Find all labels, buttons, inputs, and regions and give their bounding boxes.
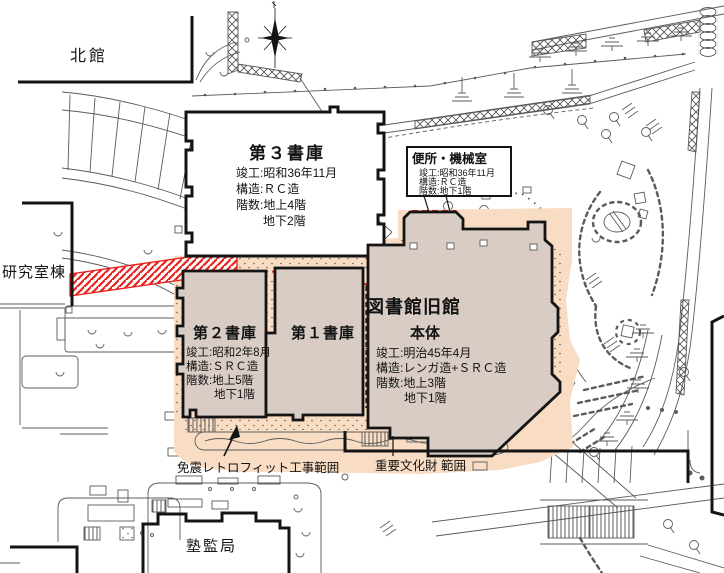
- label-research-building: 研究室棟: [2, 264, 66, 281]
- stack3-title: 第３書庫: [249, 143, 325, 163]
- toilet-machine-label-box: 便所・機械室 竣工:昭和36年11月 構造:ＲＣ造 階数:地下1階: [407, 147, 511, 212]
- stack2-detail-1: 竣工:昭和2年8月: [186, 345, 271, 359]
- building-stack1: [266, 268, 363, 420]
- stack3-detail-2: 構造:ＲＣ造: [236, 182, 299, 196]
- old-library-detail-1: 竣工:明治45年4月: [376, 345, 471, 360]
- label-cultural-property-range: 重要文化財 範囲: [375, 458, 466, 473]
- compass-north-icon: [258, 1, 292, 68]
- site-plan-canvas: 便所・機械室 竣工:昭和36年11月 構造:ＲＣ造 階数:地下1階 北館 研究室…: [0, 0, 724, 573]
- label-juku-admin-office: 塾監局: [186, 538, 237, 555]
- label-retrofit-range: 免震レトロフィット工事範囲: [177, 460, 339, 475]
- stack3-detail-3: 階数:地上4階: [236, 197, 306, 212]
- toilet-machine-title: 便所・機械室: [412, 151, 488, 166]
- stack3-detail-1: 竣工:昭和36年11月: [236, 165, 337, 180]
- old-library-subtitle: 本体: [410, 324, 441, 342]
- old-library-detail-3: 階数:地上3階: [376, 375, 446, 390]
- label-north-building: 北館: [70, 47, 108, 65]
- stack2-detail-2: 構造:ＳＲＣ造: [186, 359, 259, 373]
- old-library-title: 図書館旧館: [366, 296, 461, 317]
- stack2-title: 第２書庫: [193, 324, 257, 342]
- old-library-detail-4: 地下1階: [404, 390, 447, 405]
- stack2-detail-4: 地下1階: [214, 387, 255, 401]
- old-library-detail-2: 構造:レンガ造+ＳＲＣ造: [376, 361, 506, 375]
- stack2-detail-3: 階数:地上5階: [186, 373, 254, 387]
- toilet-machine-detail-3: 階数:地下1階: [419, 185, 472, 196]
- site-plan: 便所・機械室 竣工:昭和36年11月 構造:ＲＣ造 階数:地下1階 北館 研究室…: [0, 0, 724, 573]
- stack1-title: 第１書庫: [291, 324, 355, 342]
- stack3-detail-4: 地下2階: [263, 213, 306, 228]
